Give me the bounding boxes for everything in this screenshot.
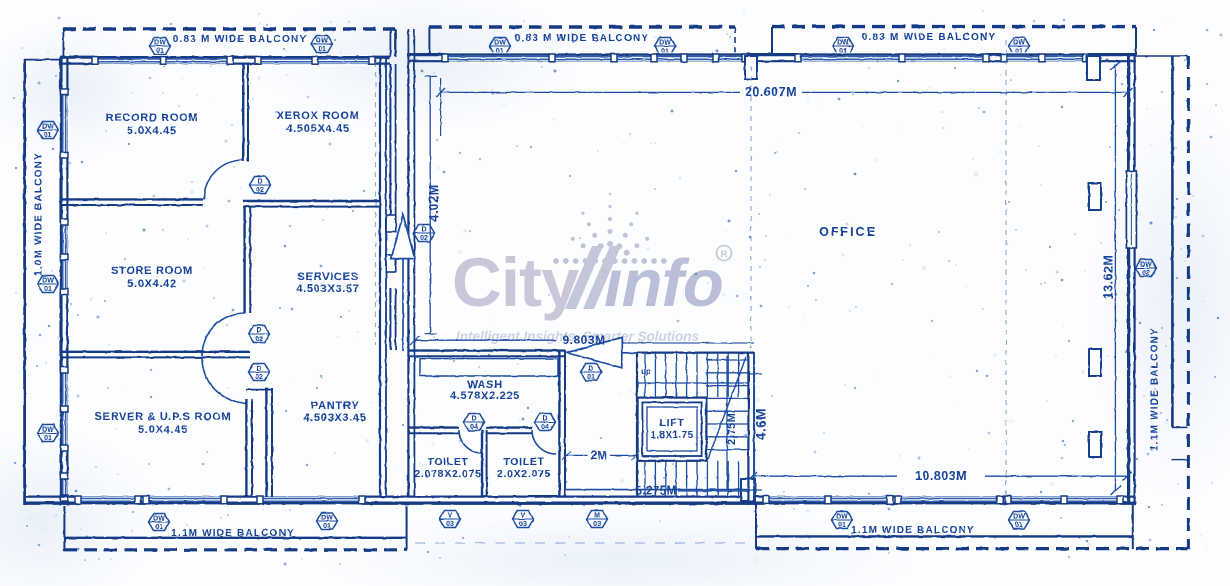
svg-text:DW: DW [837, 39, 849, 46]
svg-text:DW: DW [1013, 39, 1025, 46]
svg-text:DW: DW [154, 39, 166, 46]
svg-text:LIFT: LIFT [660, 417, 685, 429]
svg-text:DW: DW [42, 123, 54, 130]
svg-text:OFFICE: OFFICE [819, 225, 877, 239]
svg-text:01: 01 [44, 435, 52, 442]
svg-text:1.0M WIDE BALCONY: 1.0M WIDE BALCONY [34, 152, 45, 276]
svg-text:D: D [256, 327, 261, 334]
svg-text:02: 02 [255, 336, 263, 343]
svg-text:5.275M: 5.275M [635, 486, 676, 498]
svg-text:DW: DW [153, 515, 165, 522]
svg-text:DW: DW [42, 426, 54, 433]
svg-text:0.83 M WIDE BALCONY: 0.83 M WIDE BALCONY [515, 33, 649, 44]
svg-text:0.83 M WIDE BALCONY: 0.83 M WIDE BALCONY [862, 32, 996, 43]
svg-text:01: 01 [1015, 522, 1023, 529]
svg-text:4.505X4.45: 4.505X4.45 [286, 123, 349, 135]
svg-text:20.607M: 20.607M [745, 85, 797, 99]
svg-text:4.503X3.45: 4.503X3.45 [303, 412, 366, 424]
svg-text:02: 02 [1142, 270, 1150, 277]
svg-text:DW: DW [42, 277, 54, 284]
svg-text:DW: DW [836, 513, 848, 520]
svg-text:D: D [471, 415, 476, 422]
svg-text:01: 01 [318, 46, 326, 53]
svg-text:9.803M: 9.803M [562, 333, 605, 347]
svg-text:DW: DW [1140, 261, 1152, 268]
svg-text:V: V [448, 512, 453, 519]
svg-text:STORE ROOM: STORE ROOM [111, 265, 193, 277]
svg-text:01: 01 [587, 374, 595, 381]
svg-text:01: 01 [155, 524, 163, 531]
svg-text:5.0X4.45: 5.0X4.45 [127, 125, 177, 137]
svg-text:5.0X4.45: 5.0X4.45 [138, 424, 188, 436]
svg-text:4.578X2.225: 4.578X2.225 [450, 390, 520, 402]
svg-text:1.8X1.75: 1.8X1.75 [650, 430, 693, 441]
svg-text:2.0X2.075: 2.0X2.075 [497, 468, 551, 480]
svg-text:2M: 2M [591, 451, 608, 463]
svg-text:TOILET: TOILET [503, 456, 544, 468]
svg-text:D: D [257, 178, 262, 185]
svg-text:02: 02 [255, 374, 263, 381]
svg-text:4.503X3.57: 4.503X3.57 [296, 283, 359, 295]
svg-text:DW: DW [659, 39, 671, 46]
svg-text:D: D [256, 365, 261, 372]
svg-text:V: V [521, 512, 526, 519]
svg-text:13.62M: 13.62M [1102, 255, 1116, 300]
svg-text:up: up [641, 367, 651, 376]
svg-text:03: 03 [446, 521, 454, 528]
svg-text:1.1M WIDE BALCONY: 1.1M WIDE BALCONY [851, 525, 975, 536]
svg-text:ınfo: ınfo [604, 246, 723, 321]
svg-text:02: 02 [420, 235, 428, 242]
svg-text:01: 01 [323, 523, 331, 530]
svg-text:2.078X2.075: 2.078X2.075 [414, 468, 481, 480]
svg-text:R: R [721, 249, 728, 259]
svg-text:TOILET: TOILET [427, 456, 468, 468]
svg-text:01: 01 [44, 286, 52, 293]
svg-text:SERVICES: SERVICES [297, 271, 358, 283]
svg-text:DW: DW [321, 514, 333, 521]
svg-text:4.6M: 4.6M [753, 408, 768, 440]
svg-text:DW: DW [1013, 513, 1025, 520]
svg-text:DW: DW [316, 37, 328, 44]
svg-text:02: 02 [256, 187, 264, 194]
svg-text:5.0X4.42: 5.0X4.42 [127, 278, 177, 290]
svg-text:01: 01 [156, 48, 164, 55]
svg-text:01: 01 [44, 132, 52, 139]
svg-text:2.75M: 2.75M [726, 413, 738, 445]
svg-text:4.02M: 4.02M [427, 184, 441, 221]
svg-text:01: 01 [838, 522, 846, 529]
svg-text:04: 04 [541, 424, 549, 431]
svg-text:03: 03 [593, 521, 601, 528]
svg-text:City: City [452, 244, 579, 321]
svg-text:RECORD ROOM: RECORD ROOM [106, 112, 199, 124]
svg-text:1.1M WIDE BALCONY: 1.1M WIDE BALCONY [171, 528, 295, 539]
svg-text:XEROX ROOM: XEROX ROOM [277, 110, 360, 122]
svg-text:PANTRY: PANTRY [311, 400, 359, 412]
svg-text:DW: DW [494, 39, 506, 46]
svg-text:D: D [542, 415, 547, 422]
svg-text:04: 04 [470, 424, 478, 431]
svg-text:D: D [588, 365, 593, 372]
svg-text:1.1M WIDE BALCONY: 1.1M WIDE BALCONY [1150, 327, 1161, 451]
svg-text:M: M [594, 512, 600, 519]
svg-text:0.83 M WIDE BALCONY: 0.83 M WIDE BALCONY [173, 34, 307, 45]
svg-text:10.803M: 10.803M [915, 469, 967, 483]
svg-text:SERVER & U.P.S ROOM: SERVER & U.P.S ROOM [95, 411, 232, 423]
svg-text:03: 03 [519, 521, 527, 528]
svg-text:D: D [421, 226, 426, 233]
